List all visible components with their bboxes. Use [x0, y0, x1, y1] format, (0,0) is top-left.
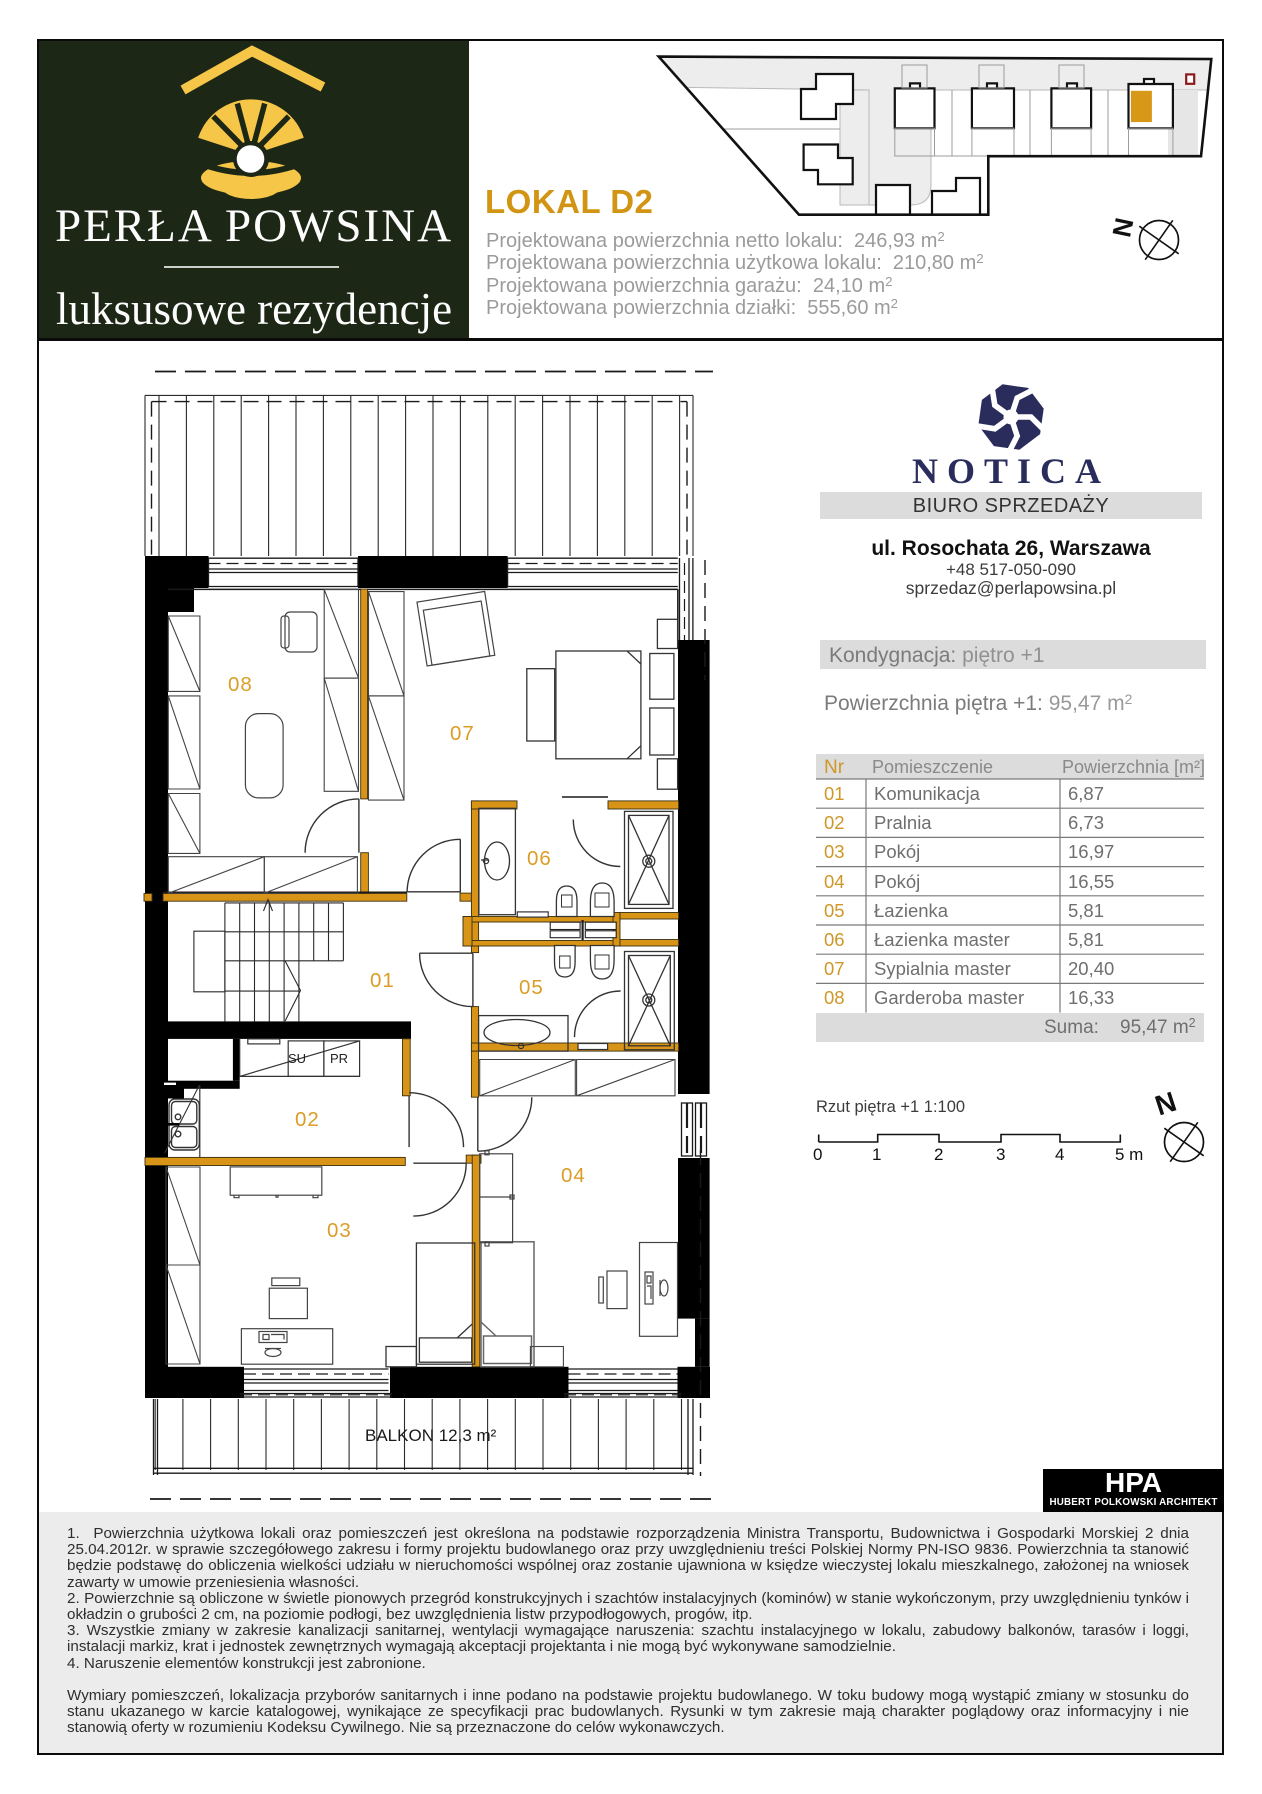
svg-text:N: N	[1151, 1086, 1180, 1122]
svg-text:2: 2	[934, 1145, 943, 1164]
svg-text:4: 4	[1055, 1145, 1064, 1164]
svg-text:02: 02	[295, 1108, 320, 1131]
svg-text:SU: SU	[288, 1051, 306, 1066]
svg-text:3: 3	[996, 1145, 1005, 1164]
svg-text:03: 03	[327, 1219, 352, 1242]
svg-text:08: 08	[228, 673, 253, 696]
svg-text:06: 06	[527, 847, 552, 870]
svg-text:07: 07	[450, 722, 475, 745]
svg-text:04: 04	[561, 1164, 586, 1187]
svg-text:1: 1	[872, 1145, 881, 1164]
svg-text:01: 01	[370, 969, 395, 992]
svg-text:05: 05	[519, 976, 544, 999]
svg-text:BALKON 12,3 m²: BALKON 12,3 m²	[365, 1426, 497, 1445]
svg-text:PR: PR	[330, 1051, 348, 1066]
svg-text:0: 0	[813, 1145, 822, 1164]
